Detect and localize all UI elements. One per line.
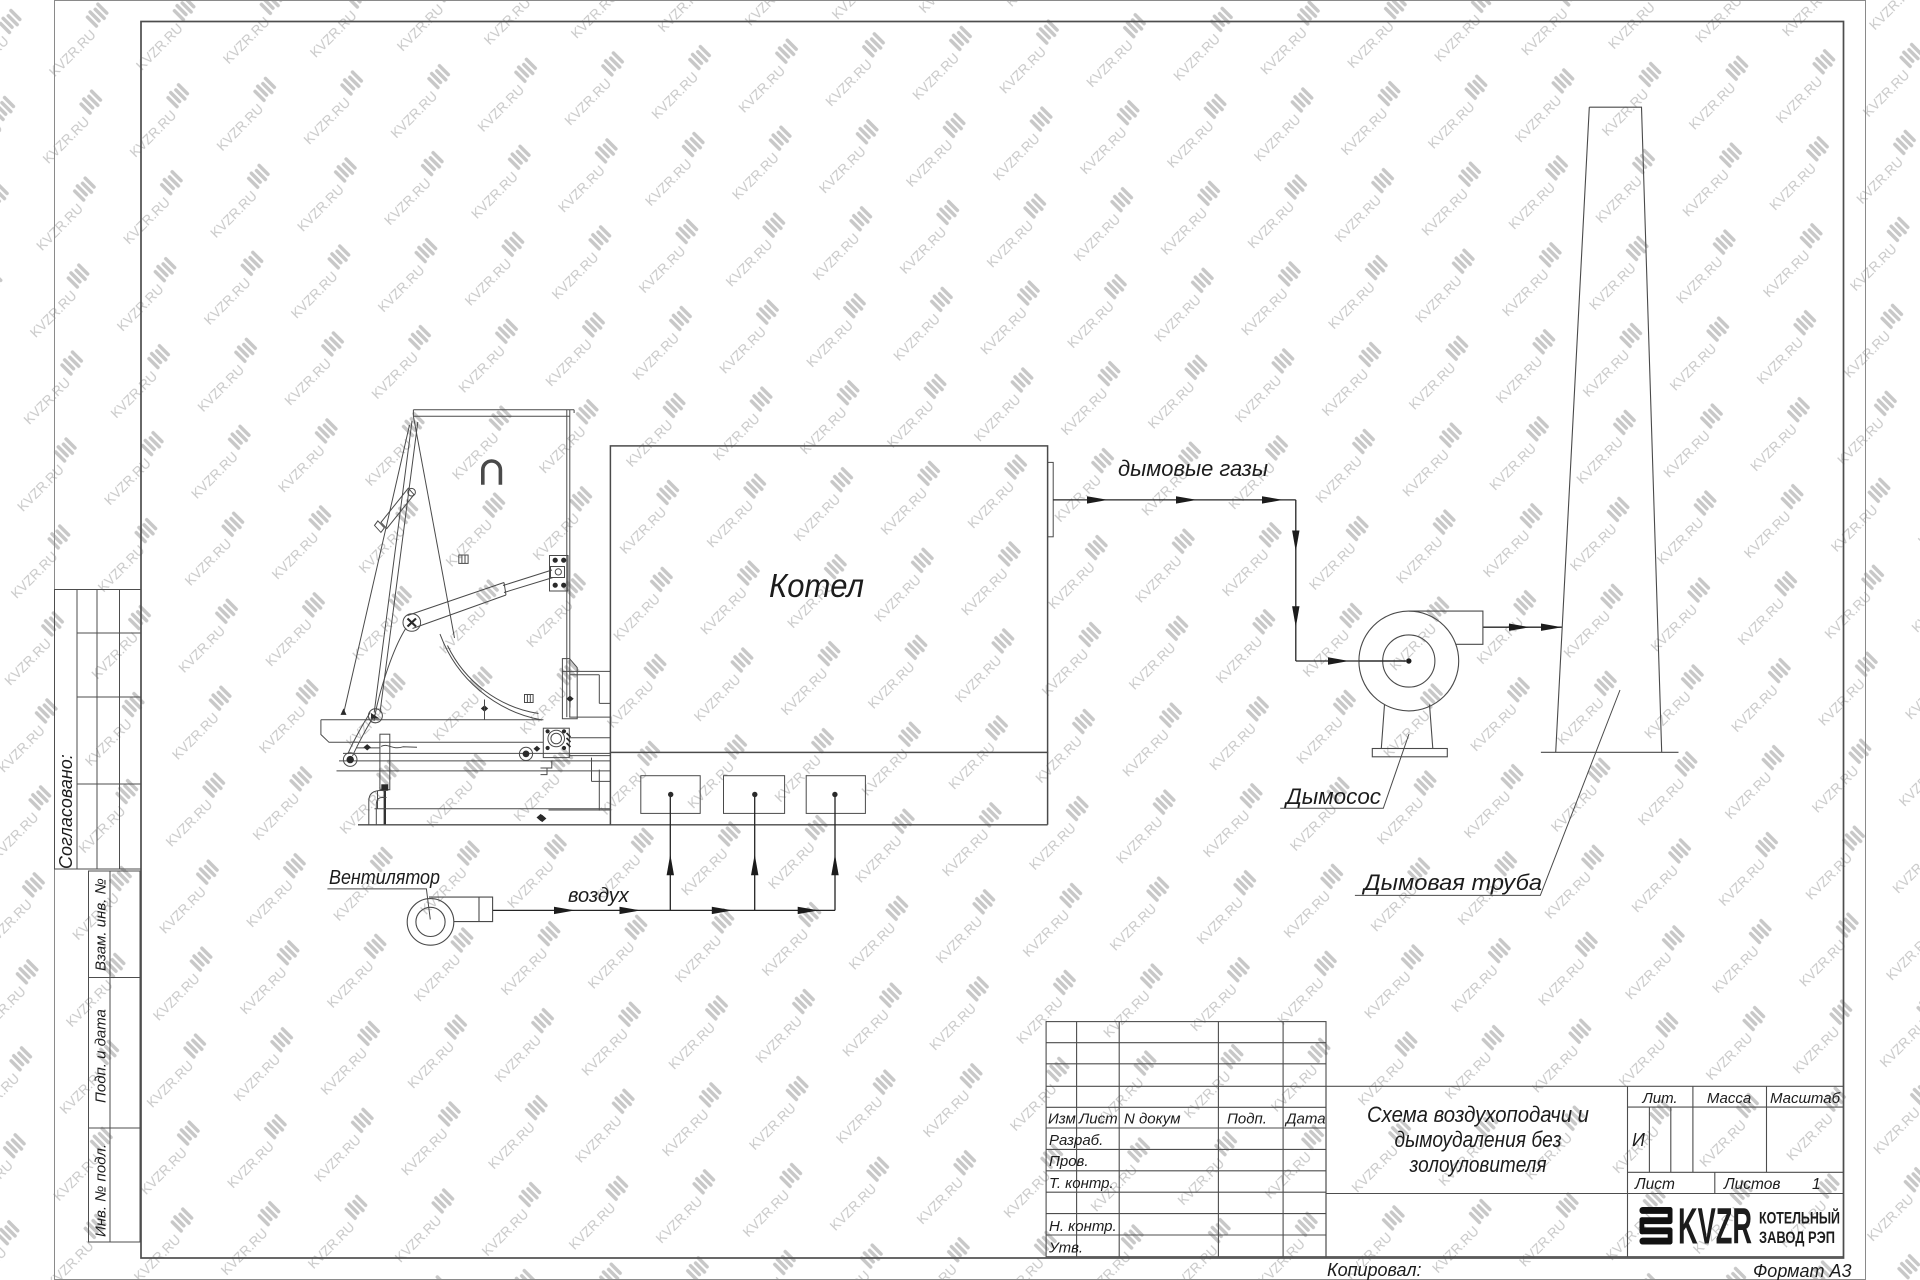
svg-text:Вентилятор: Вентилятор — [329, 867, 440, 889]
svg-text:КОТЕЛЬНЫЙ: КОТЕЛЬНЫЙ — [1759, 1209, 1840, 1228]
svg-text:Масштаб: Масштаб — [1770, 1090, 1841, 1107]
svg-text:Н. контр.: Н. контр. — [1049, 1218, 1117, 1235]
svg-text:Копировал:: Копировал: — [1327, 1260, 1422, 1280]
svg-text:Разраб.: Разраб. — [1049, 1132, 1103, 1149]
svg-text:Листов: Листов — [1723, 1176, 1780, 1193]
svg-text:дымоудаления без: дымоудаления без — [1395, 1127, 1562, 1152]
svg-text:Утв.: Утв. — [1048, 1240, 1083, 1257]
svg-text:И: И — [1632, 1130, 1645, 1150]
svg-text:дымовые газы: дымовые газы — [1118, 456, 1268, 481]
svg-text:Изм: Изм — [1048, 1111, 1076, 1128]
svg-text:Схема воздухоподачи и: Схема воздухоподачи и — [1367, 1102, 1589, 1127]
svg-text:Дымосос: Дымосос — [1283, 784, 1381, 809]
svg-text:Дата: Дата — [1284, 1111, 1326, 1128]
svg-text:золоуловителя: золоуловителя — [1409, 1152, 1547, 1177]
svg-text:воздух: воздух — [568, 885, 630, 907]
svg-text:Лит.: Лит. — [1641, 1090, 1677, 1107]
svg-text:Лист: Лист — [1078, 1111, 1118, 1128]
svg-text:Взам. инв. №: Взам. инв. № — [93, 878, 110, 971]
svg-text:Т. контр.: Т. контр. — [1049, 1175, 1114, 1192]
svg-text:KVZR: KVZR — [1678, 1198, 1752, 1255]
svg-text:1: 1 — [1812, 1176, 1821, 1193]
svg-text:ЗАВОД РЭП: ЗАВОД РЭП — [1759, 1229, 1835, 1247]
svg-text:Котел: Котел — [769, 567, 864, 604]
svg-text:N докум: N докум — [1124, 1111, 1181, 1128]
svg-text:Согласовано:: Согласовано: — [56, 754, 76, 869]
svg-text:Лист: Лист — [1634, 1176, 1675, 1193]
svg-text:Дымовая труба: Дымовая труба — [1361, 870, 1542, 895]
svg-text:Инв. № подл.: Инв. № подл. — [93, 1144, 110, 1237]
svg-text:Формат А3: Формат А3 — [1753, 1261, 1852, 1280]
svg-text:Пров.: Пров. — [1049, 1153, 1089, 1170]
svg-text:Подп.: Подп. — [1227, 1111, 1267, 1128]
svg-text:Масса: Масса — [1707, 1090, 1751, 1107]
svg-text:Подп. и дата: Подп. и дата — [93, 1009, 110, 1103]
